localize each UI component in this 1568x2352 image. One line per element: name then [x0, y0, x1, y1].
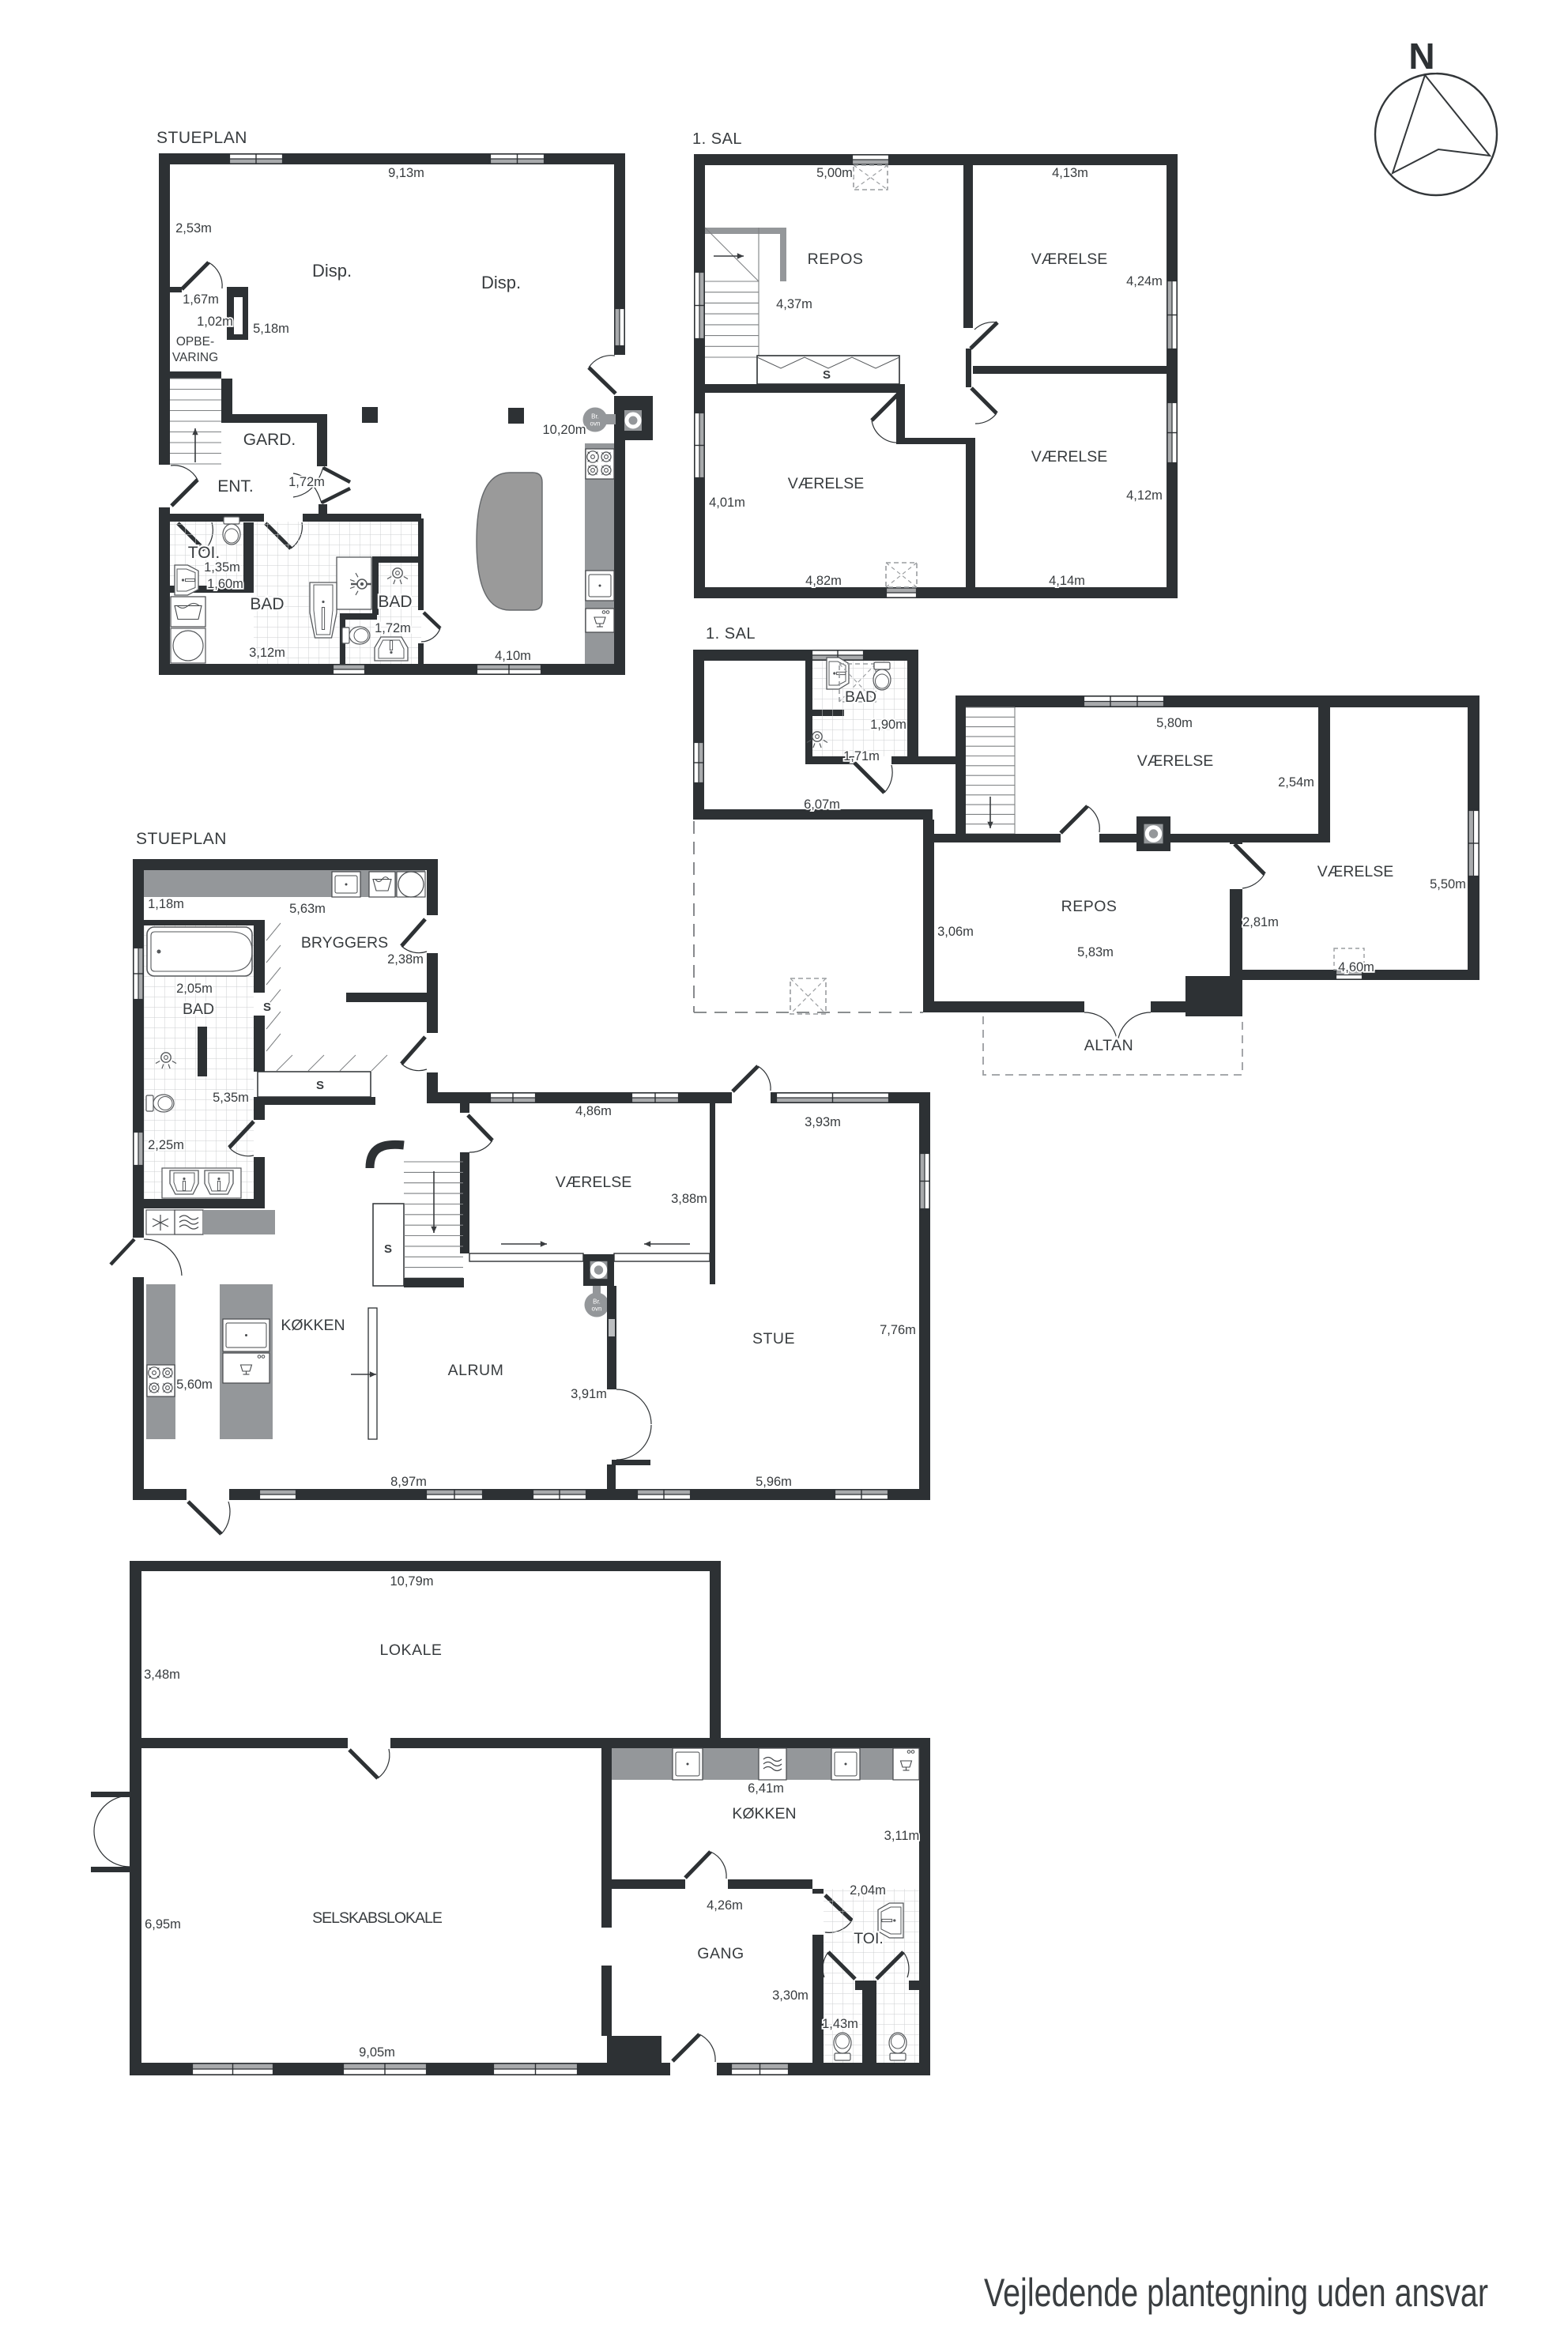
- svg-text:ovn: ovn: [590, 420, 601, 428]
- svg-text:3,12m: 3,12m: [249, 646, 285, 660]
- svg-text:TOI.: TOI.: [854, 1930, 884, 1947]
- svg-text:8,97m: 8,97m: [390, 1475, 427, 1489]
- svg-text:S: S: [384, 1242, 392, 1256]
- svg-text:5,60m: 5,60m: [176, 1378, 213, 1392]
- svg-text:VÆRELSE: VÆRELSE: [1031, 251, 1107, 268]
- svg-text:3,11m: 3,11m: [884, 1829, 920, 1843]
- svg-text:4,37m: 4,37m: [776, 297, 812, 311]
- svg-text:S: S: [316, 1079, 324, 1092]
- svg-text:2,81m: 2,81m: [1242, 915, 1279, 929]
- svg-text:5,96m: 5,96m: [756, 1475, 792, 1489]
- svg-text:1,02m: 1,02m: [197, 315, 233, 329]
- svg-text:BAD: BAD: [183, 1001, 214, 1018]
- svg-text:VÆRELSE: VÆRELSE: [1137, 752, 1213, 770]
- svg-text:BAD: BAD: [378, 593, 412, 611]
- svg-text:REPOS: REPOS: [1061, 898, 1118, 915]
- svg-text:Vejledende plantegning uden an: Vejledende plantegning uden ansvar: [984, 2271, 1488, 2315]
- svg-text:2,05m: 2,05m: [176, 982, 213, 996]
- svg-text:10,79m: 10,79m: [390, 1574, 433, 1589]
- svg-text:Disp.: Disp.: [481, 273, 521, 292]
- svg-text:ALTAN: ALTAN: [1084, 1037, 1133, 1054]
- svg-text:2,04m: 2,04m: [850, 1883, 886, 1898]
- svg-text:1,60m: 1,60m: [207, 577, 243, 591]
- svg-text:STUEPLAN: STUEPLAN: [136, 830, 227, 848]
- svg-text:5,35m: 5,35m: [213, 1091, 249, 1105]
- svg-text:5,50m: 5,50m: [1430, 877, 1466, 891]
- svg-text:BRYGGERS: BRYGGERS: [301, 934, 388, 952]
- svg-text:BAD: BAD: [845, 688, 876, 706]
- svg-text:VARING: VARING: [172, 351, 218, 364]
- svg-text:KØKKEN: KØKKEN: [281, 1317, 345, 1334]
- svg-text:4,12m: 4,12m: [1126, 488, 1163, 503]
- svg-text:LOKALE: LOKALE: [380, 1641, 443, 1659]
- svg-text:6,41m: 6,41m: [748, 1781, 784, 1796]
- svg-text:3,93m: 3,93m: [805, 1115, 841, 1129]
- svg-text:S: S: [263, 1001, 271, 1014]
- svg-text:3,91m: 3,91m: [571, 1387, 607, 1401]
- svg-text:4,14m: 4,14m: [1049, 574, 1085, 588]
- svg-text:1,90m: 1,90m: [870, 718, 906, 732]
- svg-text:5,00m: 5,00m: [816, 166, 853, 180]
- svg-text:3,30m: 3,30m: [772, 1988, 808, 2003]
- svg-text:1,72m: 1,72m: [375, 621, 411, 635]
- svg-text:5,63m: 5,63m: [289, 902, 326, 916]
- svg-text:STUE: STUE: [752, 1330, 795, 1347]
- svg-text:1. SAL: 1. SAL: [692, 130, 742, 148]
- svg-text:4,24m: 4,24m: [1126, 274, 1163, 288]
- svg-text:BAD: BAD: [250, 595, 284, 613]
- svg-text:3,88m: 3,88m: [671, 1192, 707, 1206]
- svg-text:4,60m: 4,60m: [1338, 960, 1374, 974]
- svg-text:OPBE-: OPBE-: [176, 335, 214, 349]
- svg-text:5,80m: 5,80m: [1156, 716, 1193, 730]
- svg-text:VÆRELSE: VÆRELSE: [1031, 448, 1107, 465]
- svg-text:5,18m: 5,18m: [253, 322, 289, 336]
- svg-text:4,86m: 4,86m: [575, 1104, 612, 1118]
- svg-text:VÆRELSE: VÆRELSE: [556, 1174, 631, 1191]
- svg-text:ENT.: ENT.: [217, 477, 254, 496]
- svg-text:4,01m: 4,01m: [709, 496, 745, 510]
- svg-text:VÆRELSE: VÆRELSE: [788, 475, 864, 492]
- svg-text:3,48m: 3,48m: [144, 1668, 180, 1682]
- svg-text:1,43m: 1,43m: [822, 2017, 858, 2031]
- svg-text:1,18m: 1,18m: [148, 897, 184, 911]
- svg-text:9,13m: 9,13m: [388, 166, 424, 180]
- svg-text:KØKKEN: KØKKEN: [732, 1805, 796, 1822]
- svg-text:10,20m: 10,20m: [542, 423, 586, 437]
- svg-text:GANG: GANG: [697, 1945, 744, 1962]
- svg-text:4,26m: 4,26m: [707, 1898, 743, 1913]
- svg-text:ALRUM: ALRUM: [448, 1362, 504, 1379]
- svg-text:2,54m: 2,54m: [1278, 775, 1314, 790]
- svg-text:3,06m: 3,06m: [937, 925, 974, 939]
- svg-text:REPOS: REPOS: [808, 251, 864, 268]
- svg-text:2,38m: 2,38m: [387, 952, 424, 967]
- svg-text:7,76m: 7,76m: [880, 1323, 916, 1337]
- svg-text:S: S: [823, 368, 831, 382]
- svg-text:4,82m: 4,82m: [805, 574, 842, 588]
- svg-text:4,13m: 4,13m: [1052, 166, 1088, 180]
- svg-text:Br.: Br.: [593, 1298, 601, 1306]
- svg-text:1. SAL: 1. SAL: [706, 625, 756, 643]
- svg-text:1,72m: 1,72m: [288, 475, 325, 489]
- svg-text:N: N: [1408, 36, 1434, 77]
- svg-text:4,10m: 4,10m: [495, 649, 531, 663]
- svg-text:Br.: Br.: [591, 413, 599, 420]
- svg-text:GARD.: GARD.: [243, 431, 296, 449]
- svg-text:6,07m: 6,07m: [804, 797, 840, 812]
- svg-text:9,05m: 9,05m: [359, 2045, 395, 2060]
- svg-text:Disp.: Disp.: [312, 261, 352, 281]
- svg-text:1,67m: 1,67m: [183, 292, 219, 307]
- svg-text:TOI.: TOI.: [188, 544, 220, 562]
- svg-text:ovn: ovn: [592, 1306, 602, 1313]
- svg-text:2,53m: 2,53m: [175, 221, 212, 236]
- svg-text:VÆRELSE: VÆRELSE: [1317, 863, 1393, 880]
- svg-text:1,71m: 1,71m: [843, 749, 880, 763]
- svg-text:2,25m: 2,25m: [148, 1138, 184, 1152]
- svg-text:SELSKABSLOKALE: SELSKABSLOKALE: [312, 1909, 443, 1927]
- svg-text:STUEPLAN: STUEPLAN: [156, 129, 247, 147]
- svg-text:5,83m: 5,83m: [1077, 945, 1114, 959]
- svg-text:1,35m: 1,35m: [204, 560, 240, 575]
- svg-text:6,95m: 6,95m: [145, 1917, 181, 1932]
